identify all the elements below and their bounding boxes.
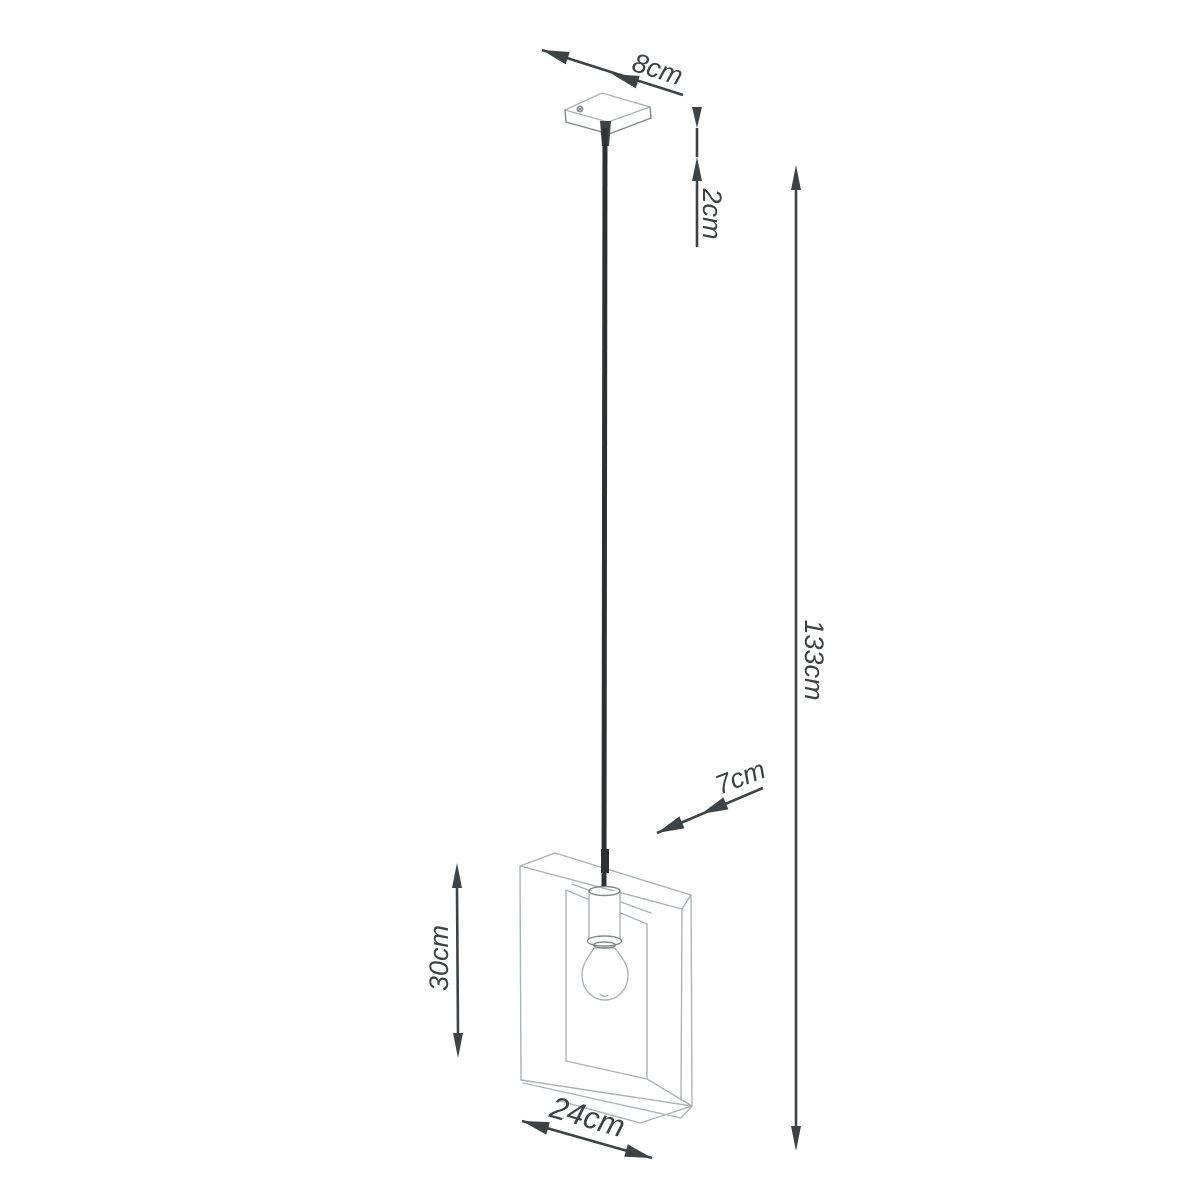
- dimension-overall-height-arrowhead-up: [791, 165, 801, 190]
- dimension-canopy-height: 2cm: [692, 107, 727, 247]
- dimension-shade-width: 24cm: [522, 1089, 652, 1158]
- dimension-shade-depth-arrowhead: [657, 816, 684, 833]
- socket-body: [589, 891, 620, 941]
- dimension-shade-width-label: 24cm: [545, 1089, 628, 1144]
- dimension-overall-height-label: 133cm: [799, 619, 829, 700]
- dimension-shade-depth: 7cm: [657, 754, 770, 833]
- dimension-shade-width-arrowhead-right: [624, 1144, 652, 1158]
- dimension-canopy-width: 8cm: [542, 47, 686, 95]
- dimension-canopy-width-label: 8cm: [629, 47, 687, 91]
- dimension-shade-height-label: 30cm: [424, 925, 454, 991]
- dimension-canopy-height-label: 2cm: [697, 187, 727, 239]
- lamp-socket: [588, 887, 622, 949]
- dimension-canopy-width-arrowhead: [542, 50, 570, 64]
- dimension-shade-depth-arrowhead-2: [701, 797, 728, 814]
- dimension-shade-width-arrowhead-left: [522, 1121, 550, 1135]
- pendant-lamp-dimension-drawing: 8cm 2cm 133cm 7cm 30cm 24cm: [0, 0, 1200, 1200]
- dimension-shade-height-line: [457, 888, 458, 1033]
- dimension-shade-depth-label: 7cm: [711, 754, 769, 800]
- dimension-shade-height-arrowhead-up: [452, 863, 462, 888]
- dimension-shade-height-arrowhead-down: [453, 1033, 463, 1058]
- dimension-canopy-height-arrowhead-down: [692, 107, 702, 128]
- diagram-canvas: 8cm 2cm 133cm 7cm 30cm 24cm: [0, 0, 1200, 1200]
- light-bulb: [582, 948, 628, 1000]
- bulb-glass: [582, 948, 628, 1000]
- cable-line: [604, 128, 605, 886]
- dimension-shade-height: 30cm: [424, 863, 463, 1058]
- frame-opening-edges: [566, 884, 692, 1106]
- power-cable: [600, 121, 611, 886]
- dimension-overall-height: 133cm: [791, 165, 829, 1151]
- dimension-overall-height-arrowhead-down: [791, 1126, 801, 1151]
- dimension-canopy-height-arrowhead-up: [692, 157, 702, 181]
